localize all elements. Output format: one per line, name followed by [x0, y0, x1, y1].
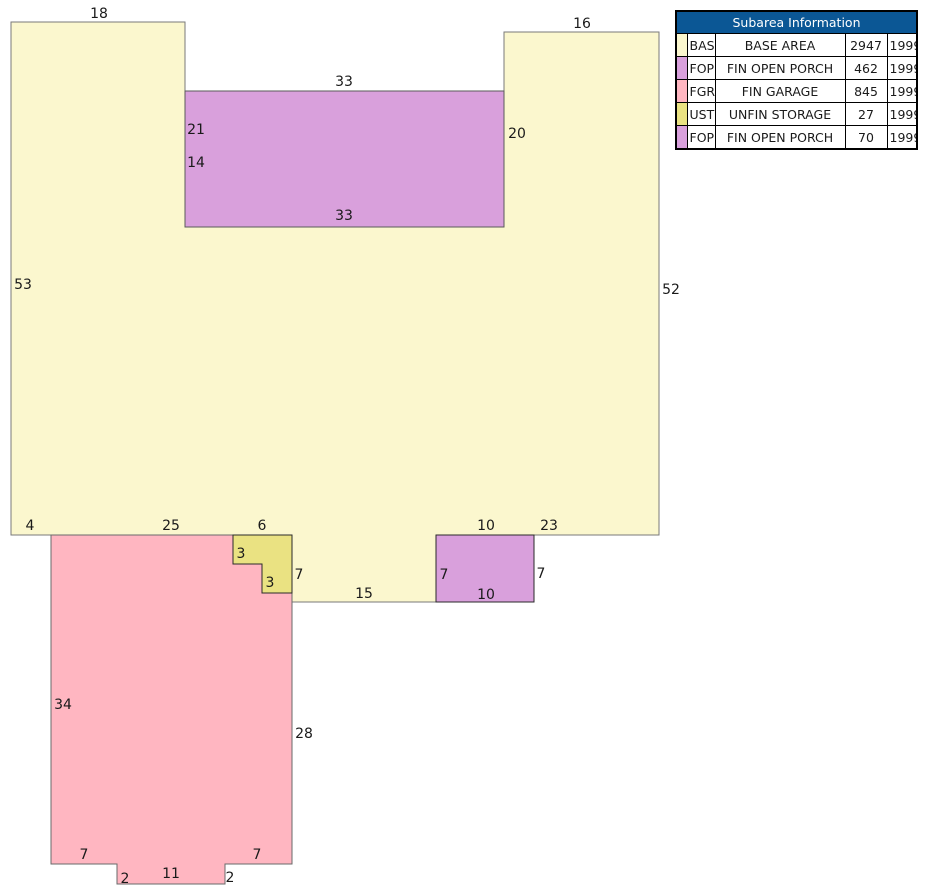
subarea-table-header: Subarea Information: [676, 11, 917, 34]
dimension-label: 15: [355, 586, 373, 602]
subarea-row: FOPFIN OPEN PORCH4621999: [676, 57, 917, 80]
dimension-label: 10: [477, 587, 495, 603]
dimension-label: 18: [90, 6, 108, 22]
dimension-label: 33: [335, 74, 353, 90]
subarea-description: FIN OPEN PORCH: [715, 57, 845, 80]
subarea-row: USTUNFIN STORAGE271999: [676, 103, 917, 126]
subarea-area-sqft: 2947: [845, 34, 887, 57]
dimension-label: 21: [187, 122, 205, 138]
subarea-description: FIN GARAGE: [715, 80, 845, 103]
dimension-label: 20: [508, 126, 526, 142]
dimension-label: 10: [477, 518, 495, 534]
subarea-color-swatch: [676, 34, 687, 57]
dimension-label: 4: [26, 518, 35, 534]
dimension-label: 34: [54, 697, 72, 713]
dimension-label: 53: [14, 277, 32, 293]
subarea-color-swatch: [676, 103, 687, 126]
subarea-code: UST: [687, 103, 715, 126]
subarea-color-swatch: [676, 57, 687, 80]
fin-open-porch-462-shape: [185, 91, 504, 227]
dimension-label: 2: [121, 871, 130, 887]
subarea-area-sqft: 27: [845, 103, 887, 126]
subarea-area-sqft: 462: [845, 57, 887, 80]
dimension-label: 7: [80, 847, 89, 863]
dimension-label: 7: [295, 567, 304, 583]
dimension-label: 7: [537, 566, 546, 582]
subarea-area-sqft: 845: [845, 80, 887, 103]
subarea-table-title: Subarea Information: [676, 11, 917, 34]
dimension-label: 11: [162, 866, 180, 882]
subarea-row: FGRFIN GARAGE8451999: [676, 80, 917, 103]
subarea-color-swatch: [676, 126, 687, 150]
subarea-year: 1999: [887, 103, 917, 126]
dimension-label: 6: [258, 518, 267, 534]
subarea-table-body: BASBASE AREA29471999FOPFIN OPEN PORCH462…: [676, 34, 917, 150]
subarea-year: 1999: [887, 34, 917, 57]
dimension-label: 7: [253, 847, 262, 863]
dimension-label: 3: [266, 575, 275, 591]
dimension-label: 28: [295, 726, 313, 742]
fin-garage-shape: [51, 535, 292, 884]
dimension-label: 23: [540, 518, 558, 534]
subarea-code: FGR: [687, 80, 715, 103]
dimension-label: 33: [335, 208, 353, 224]
subarea-year: 1999: [887, 80, 917, 103]
subarea-code: FOP: [687, 126, 715, 150]
subarea-table: Subarea Information BASBASE AREA29471999…: [675, 10, 918, 150]
subarea-description: FIN OPEN PORCH: [715, 126, 845, 150]
dimension-label: 3: [237, 546, 246, 562]
subarea-color-swatch: [676, 80, 687, 103]
dimension-label: 14: [187, 155, 205, 171]
subarea-row: FOPFIN OPEN PORCH701999: [676, 126, 917, 150]
subarea-year: 1999: [887, 57, 917, 80]
subarea-code: BAS: [687, 34, 715, 57]
dimension-label: 16: [573, 16, 591, 32]
dimension-label: 52: [662, 282, 680, 298]
subarea-description: UNFIN STORAGE: [715, 103, 845, 126]
subarea-area-sqft: 70: [845, 126, 887, 150]
dimension-label: 7: [440, 567, 449, 583]
subarea-row: BASBASE AREA29471999: [676, 34, 917, 57]
subarea-year: 1999: [887, 126, 917, 150]
subarea-description: BASE AREA: [715, 34, 845, 57]
dimension-label: 25: [162, 518, 180, 534]
subarea-code: FOP: [687, 57, 715, 80]
dimension-label: 2: [226, 870, 235, 886]
